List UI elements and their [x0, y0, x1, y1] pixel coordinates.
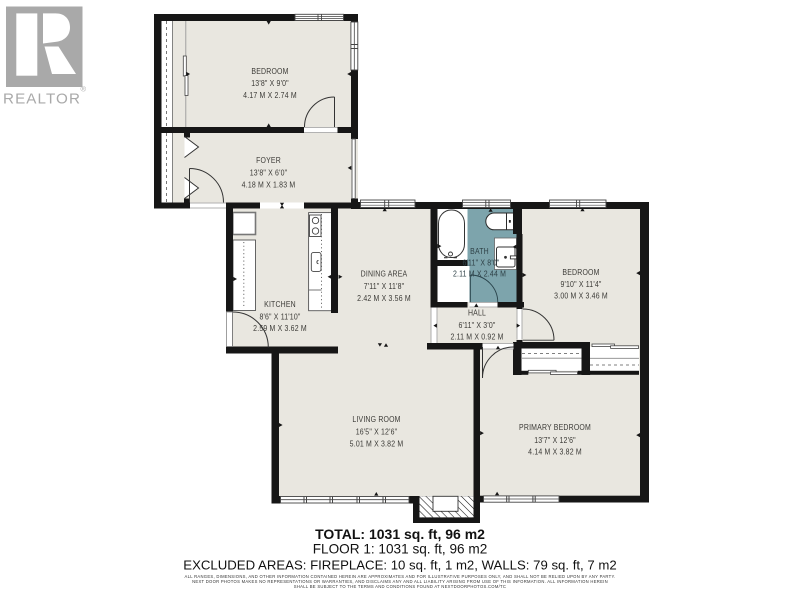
svg-text:4.18 M X 1.83 M: 4.18 M X 1.83 M [242, 180, 296, 190]
svg-text:BEDROOM: BEDROOM [251, 67, 288, 77]
svg-text:BEDROOM: BEDROOM [562, 268, 599, 278]
svg-text:16'5" X 12'6": 16'5" X 12'6" [356, 427, 398, 437]
svg-text:TOTAL: 1031 sq. ft, 96 m2: TOTAL: 1031 sq. ft, 96 m2 [315, 526, 485, 542]
svg-text:HALL: HALL [468, 308, 486, 318]
svg-text:BATH: BATH [470, 247, 489, 257]
svg-text:SHALL BE SUBJECT TO THE TERMS: SHALL BE SUBJECT TO THE TERMS AND CONDIT… [294, 584, 506, 589]
svg-text:5.01 M X 3.82 M: 5.01 M X 3.82 M [350, 439, 404, 449]
svg-text:4.17 M X 2.74 M: 4.17 M X 2.74 M [243, 91, 297, 101]
svg-text:FLOOR 1: 1031 sq. ft, 96 m2: FLOOR 1: 1031 sq. ft, 96 m2 [313, 542, 488, 557]
svg-text:REALTOR: REALTOR [3, 91, 81, 108]
svg-text:LIVING ROOM: LIVING ROOM [352, 415, 400, 425]
svg-text:2.11 M X 2.44 M: 2.11 M X 2.44 M [453, 269, 506, 279]
svg-text:2.59 M X 3.62 M: 2.59 M X 3.62 M [253, 324, 307, 334]
svg-text:13'8" X 9'0": 13'8" X 9'0" [251, 79, 289, 89]
svg-text:6'11" X 3'0": 6'11" X 3'0" [458, 321, 495, 331]
svg-text:KITCHEN: KITCHEN [264, 300, 296, 310]
svg-text:8'6" X 11'10": 8'6" X 11'10" [259, 312, 300, 322]
svg-text:13'8" X 6'0": 13'8" X 6'0" [250, 168, 288, 178]
svg-text:®: ® [81, 85, 87, 94]
svg-text:6'11" X 8'0": 6'11" X 8'0" [462, 258, 499, 268]
svg-text:3.00 M X 3.46 M: 3.00 M X 3.46 M [554, 291, 608, 301]
svg-text:DINING AREA: DINING AREA [361, 269, 408, 279]
svg-text:2.11 M X 0.92 M: 2.11 M X 0.92 M [450, 332, 503, 342]
svg-text:4.14 M X 3.82 M: 4.14 M X 3.82 M [528, 447, 582, 457]
svg-text:PRIMARY BEDROOM: PRIMARY BEDROOM [519, 423, 591, 433]
svg-text:EXCLUDED AREAS: FIREPLACE: 10: EXCLUDED AREAS: FIREPLACE: 10 sq. ft, 1 … [183, 558, 616, 573]
svg-text:FOYER: FOYER [256, 156, 281, 166]
svg-text:2.42 M X 3.56 M: 2.42 M X 3.56 M [357, 294, 411, 304]
svg-text:13'7" X 12'6": 13'7" X 12'6" [534, 436, 576, 446]
svg-text:9'10" X 11'4": 9'10" X 11'4" [560, 280, 601, 290]
svg-text:7'11" X 11'8": 7'11" X 11'8" [364, 282, 405, 292]
